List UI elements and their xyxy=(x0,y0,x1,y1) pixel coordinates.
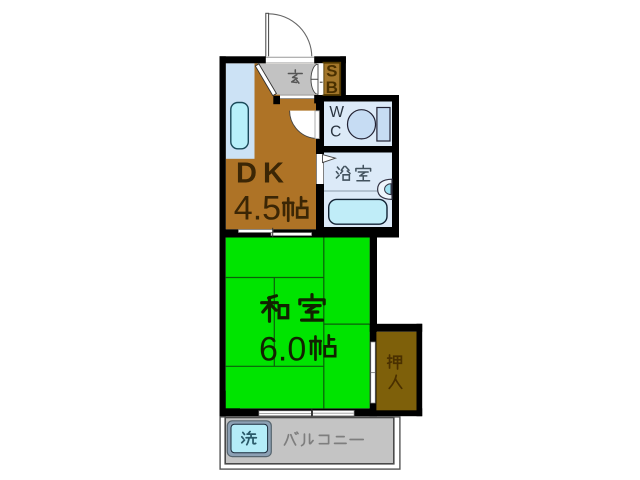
svg-text:4.5: 4.5 xyxy=(234,190,281,228)
svg-text:B: B xyxy=(326,78,338,97)
svg-text:C: C xyxy=(330,124,341,141)
svg-text:W: W xyxy=(329,104,344,121)
svg-text:6.0: 6.0 xyxy=(259,331,306,369)
svg-text:DK: DK xyxy=(236,158,290,190)
